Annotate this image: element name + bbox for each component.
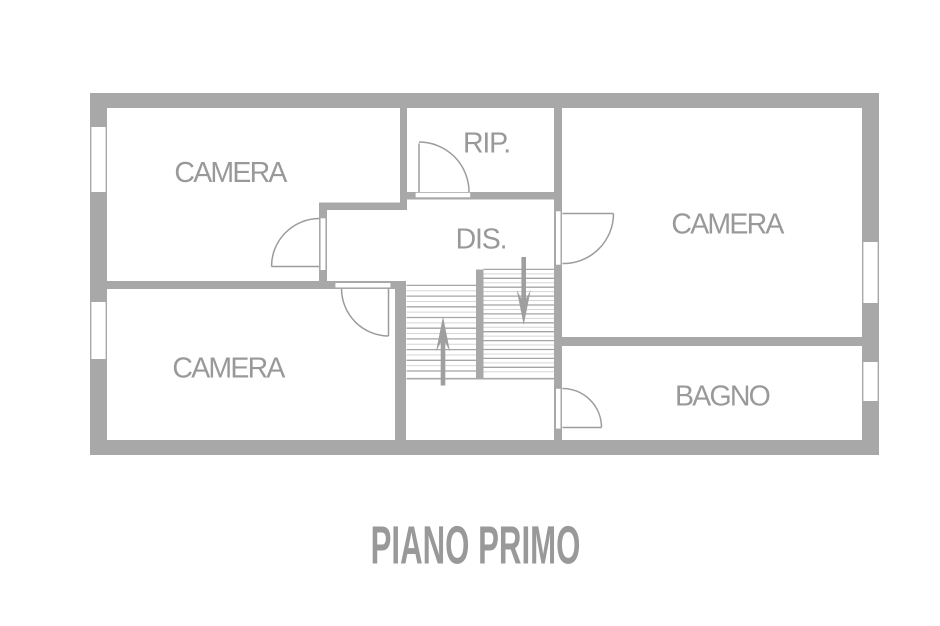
svg-text:CAMERA: CAMERA xyxy=(172,353,285,385)
svg-text:DIS.: DIS. xyxy=(456,224,507,256)
svg-text:PIANO PRIMO: PIANO PRIMO xyxy=(371,516,581,576)
svg-text:RIP.: RIP. xyxy=(463,128,510,160)
svg-text:BAGNO: BAGNO xyxy=(675,381,770,413)
svg-text:CAMERA: CAMERA xyxy=(174,157,287,189)
svg-text:CAMERA: CAMERA xyxy=(671,209,784,241)
